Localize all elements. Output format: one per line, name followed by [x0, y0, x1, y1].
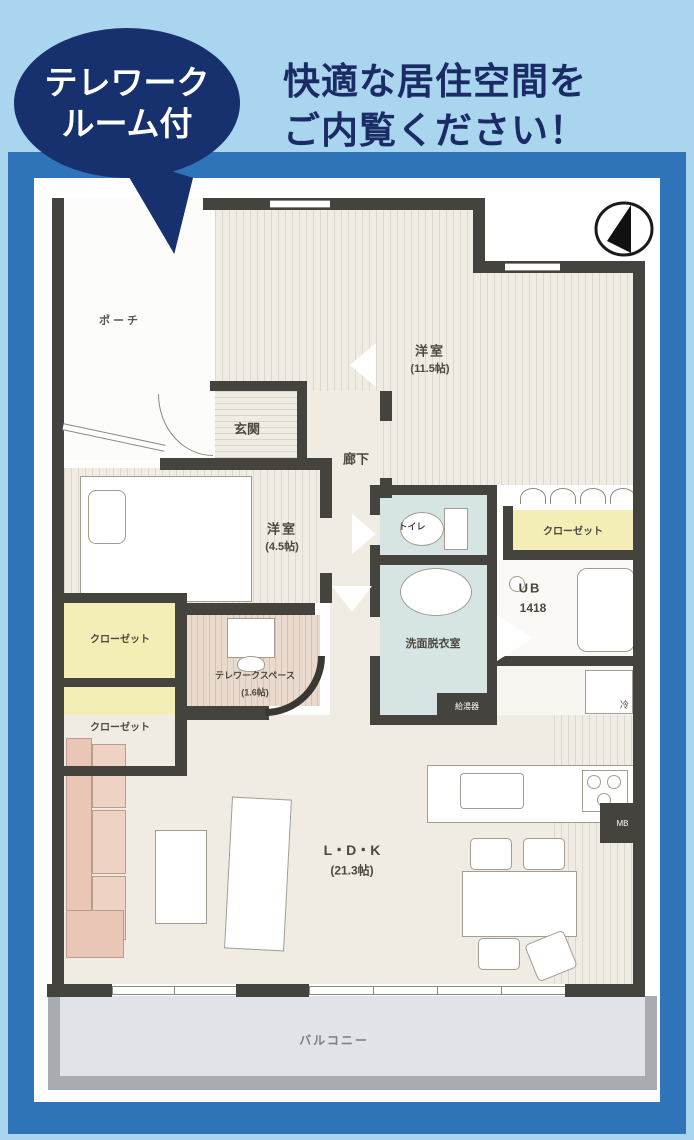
- headline-line1: 快適な居住空間を: [283, 58, 587, 107]
- telework-label: テレワークスペース: [215, 669, 295, 682]
- wall: [320, 458, 332, 518]
- telework-badge: テレワーク ルーム付: [14, 28, 240, 178]
- floorplan-frame: 給湯器 MB 冷 ポーチ 洋室 (11.5帖) 玄関 廊下 洋室 (4.5帖) …: [8, 152, 686, 1134]
- toilet-label: トイレ: [398, 520, 425, 533]
- wall: [52, 438, 64, 984]
- wall: [370, 485, 380, 515]
- meter-box-label: MB: [617, 819, 629, 828]
- burner: [607, 775, 621, 789]
- sofa-cushion: [92, 744, 126, 808]
- coffee-table: [155, 830, 207, 924]
- western45-label: 洋室: [267, 519, 297, 538]
- hanger-icon: [520, 488, 546, 504]
- telework-desk: [227, 618, 275, 658]
- wall: [497, 656, 645, 666]
- headline: 快適な居住空間を ご内覧ください！: [283, 58, 587, 156]
- bed-pillow: [88, 490, 126, 544]
- tv-board: [224, 797, 292, 952]
- wall: [370, 555, 497, 565]
- window: [270, 200, 330, 208]
- telework-size: (1.6帖): [241, 686, 269, 699]
- balcony-wall-right: [645, 996, 657, 1090]
- kitchen-sink: [460, 773, 524, 809]
- water-heater-label: 給湯器: [455, 701, 479, 712]
- unit-bath-size: 1418: [520, 601, 547, 615]
- hallway-label: 廊下: [343, 449, 369, 468]
- wall: [60, 766, 185, 776]
- hanger-icon: [550, 488, 576, 504]
- wall: [60, 678, 185, 687]
- flyer-page: { "badge": { "line1": "テレワーク", "line2": …: [0, 0, 694, 1140]
- window: [505, 263, 560, 271]
- wall: [175, 593, 187, 776]
- toilet-tank: [444, 508, 468, 550]
- water-heater-box: 給湯器: [437, 693, 497, 719]
- wall: [210, 381, 307, 391]
- armchair: [66, 910, 124, 958]
- wall: [320, 573, 332, 603]
- porch-label: ポーチ: [99, 312, 141, 328]
- western11-label: 洋室: [415, 341, 445, 360]
- dining-chair: [478, 938, 520, 970]
- closet-right-label: クローゼット: [543, 523, 603, 538]
- wall: [47, 984, 112, 997]
- closet-left-lower-label: クローゼット: [90, 719, 150, 734]
- ldk-label: L・D・K: [324, 840, 381, 860]
- western11-size: (11.5帖): [410, 360, 449, 376]
- badge-line2: ルーム付: [61, 103, 192, 144]
- refrigerator-label: 冷: [620, 698, 629, 711]
- hanger-icon: [580, 488, 606, 504]
- refrigerator-box: 冷: [585, 670, 633, 714]
- wall: [565, 984, 645, 997]
- window: [309, 986, 565, 995]
- compass-icon: [593, 200, 655, 258]
- wall: [297, 381, 307, 470]
- floorplan: 給湯器 MB 冷 ポーチ 洋室 (11.5帖) 玄関 廊下 洋室 (4.5帖) …: [34, 178, 660, 1102]
- headline-line2: ご内覧ください！: [283, 107, 587, 156]
- wall: [160, 458, 320, 470]
- sofa-cushion: [92, 810, 126, 874]
- dining-table: [462, 871, 577, 937]
- western45-size: (4.5帖): [265, 538, 299, 554]
- wall: [380, 391, 392, 421]
- burner: [587, 775, 601, 789]
- dining-chair: [470, 838, 512, 870]
- wall: [60, 593, 187, 603]
- wall: [503, 550, 645, 560]
- wall: [236, 984, 309, 997]
- closet-left-upper-label: クローゼット: [90, 631, 150, 646]
- wall: [183, 603, 315, 615]
- wall: [370, 565, 380, 617]
- dining-chair: [523, 838, 565, 870]
- washroom-label: 洗面脱衣室: [406, 635, 461, 651]
- balcony-label: バルコニー: [299, 1032, 369, 1049]
- entrance-label: 玄関: [234, 419, 260, 438]
- meter-box: MB: [600, 803, 645, 843]
- washbasin: [400, 568, 472, 616]
- wall: [370, 485, 497, 495]
- window: [112, 986, 236, 995]
- curved-wall: [265, 656, 325, 716]
- ldk-size: (21.3帖): [330, 862, 373, 879]
- wall: [633, 261, 645, 996]
- wall: [180, 706, 269, 720]
- wall: [52, 198, 64, 444]
- unit-bath-label: UB: [519, 581, 542, 596]
- badge-line1: テレワーク: [45, 62, 210, 103]
- wall: [503, 506, 513, 550]
- balcony-wall-bottom: [48, 1076, 657, 1090]
- bathtub: [577, 568, 635, 652]
- wall: [203, 198, 485, 210]
- western11-floor-right: [473, 273, 633, 485]
- wall: [487, 485, 497, 725]
